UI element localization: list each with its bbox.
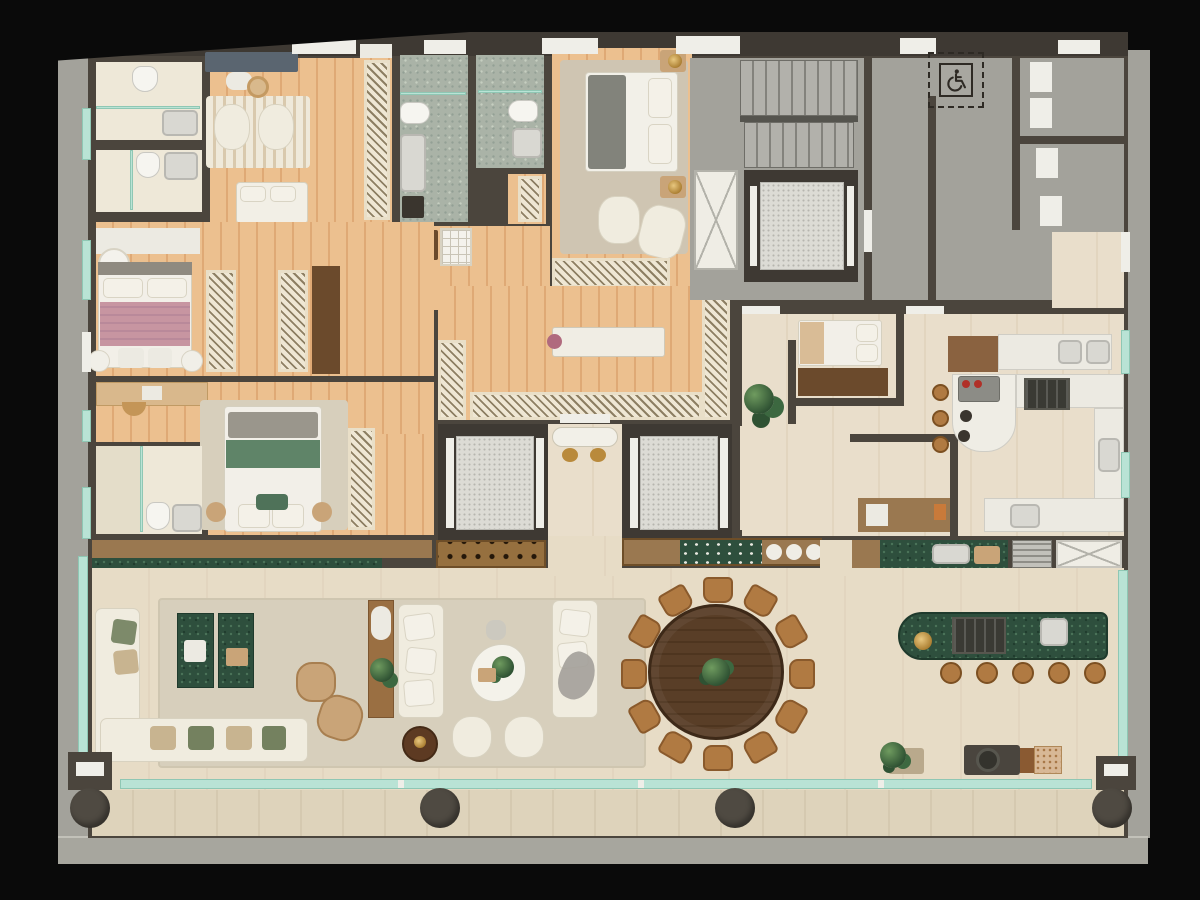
slipper-armchair bbox=[504, 716, 544, 758]
table-lamp bbox=[668, 180, 682, 194]
niche bbox=[1036, 148, 1058, 178]
glass-railing-front bbox=[120, 779, 1092, 789]
grid-cabinet bbox=[440, 228, 472, 266]
bowl bbox=[766, 544, 782, 560]
green-pillow bbox=[256, 494, 288, 510]
bbq-wood-shelf bbox=[1020, 748, 1034, 773]
gas-cooktop bbox=[1024, 378, 1070, 410]
bed-pillows bbox=[270, 186, 296, 202]
metal-shelf bbox=[1012, 540, 1052, 568]
wardrobe-closet bbox=[518, 176, 542, 222]
table-books bbox=[226, 648, 248, 666]
sofa-pillows bbox=[402, 612, 435, 642]
bed-pillows bbox=[103, 278, 143, 298]
counter-stool bbox=[932, 410, 949, 427]
toilet bbox=[136, 152, 160, 178]
wheelchair-glyph bbox=[943, 67, 969, 93]
kitchen-sink bbox=[1098, 438, 1120, 472]
x-front-cabinet bbox=[1056, 540, 1122, 568]
service-elevator-cab bbox=[760, 182, 844, 270]
elevator-door bbox=[750, 186, 757, 266]
wall bbox=[788, 340, 796, 424]
round-pouf bbox=[206, 502, 226, 522]
dining-chair bbox=[703, 577, 733, 603]
bed-pillows bbox=[856, 324, 878, 342]
console-tray bbox=[371, 606, 391, 640]
sofa-pillow-tan bbox=[226, 726, 252, 750]
elevator-1-cab bbox=[456, 436, 534, 530]
stair-flight-upper bbox=[740, 60, 858, 116]
niche bbox=[1040, 196, 1062, 226]
foot-bench bbox=[118, 348, 144, 368]
balcony-planter-edge bbox=[58, 836, 1148, 864]
kitchen-sink bbox=[1010, 504, 1040, 528]
table-books bbox=[478, 668, 496, 682]
shelf bbox=[360, 44, 392, 58]
foyer-stool bbox=[562, 448, 578, 462]
stair-flight-lower bbox=[744, 122, 854, 168]
wardrobe-cabinet bbox=[312, 266, 340, 374]
console-table bbox=[552, 427, 618, 447]
bed-throw bbox=[588, 75, 626, 169]
wall bbox=[950, 442, 958, 536]
table-lamp bbox=[668, 54, 682, 68]
balcony-column bbox=[70, 788, 110, 828]
cutting-board bbox=[974, 546, 1000, 564]
sofa-pillow-tan bbox=[113, 649, 139, 675]
bbq-pegboard bbox=[1034, 746, 1062, 774]
tv-sideboard bbox=[92, 540, 432, 558]
dining-chair bbox=[789, 659, 815, 689]
door-gap bbox=[906, 306, 944, 314]
wardrobe-closet bbox=[364, 60, 390, 220]
wardrobe-closet bbox=[348, 428, 375, 530]
kitchen-counter-south bbox=[984, 498, 1124, 532]
wall bbox=[896, 314, 904, 404]
headboard bbox=[98, 262, 192, 275]
toilet bbox=[146, 502, 170, 530]
green-blanket bbox=[226, 440, 320, 468]
window bbox=[1121, 452, 1130, 498]
sofa-pillow-green bbox=[262, 726, 286, 750]
window bbox=[82, 332, 91, 372]
core-wall bbox=[1020, 136, 1124, 144]
accessible-zone-box bbox=[928, 52, 984, 108]
toilet bbox=[132, 66, 158, 92]
sofa-pillow-green bbox=[188, 726, 214, 750]
elevator-2-cab bbox=[640, 436, 718, 530]
bath-cabinet bbox=[402, 196, 424, 218]
kitchen-sink bbox=[1086, 340, 1110, 364]
core-wall bbox=[864, 58, 872, 300]
toilet bbox=[508, 100, 538, 122]
folded-duvet bbox=[228, 412, 318, 438]
kitchen-cabinet-wood bbox=[948, 336, 998, 372]
island-stool bbox=[1084, 662, 1106, 684]
corner-plant bbox=[744, 384, 774, 414]
bed-pillows bbox=[240, 186, 266, 202]
window bbox=[676, 36, 740, 54]
window bbox=[542, 38, 598, 54]
table-centerpiece bbox=[702, 658, 730, 686]
vanity-sink bbox=[162, 110, 198, 136]
vanity-sink bbox=[512, 128, 542, 158]
woven-pouf bbox=[247, 76, 269, 98]
counter-stool bbox=[932, 384, 949, 401]
niche bbox=[1030, 98, 1052, 128]
window bbox=[1058, 40, 1100, 54]
window bbox=[82, 108, 91, 160]
window bbox=[82, 410, 91, 442]
wardrobe-closet bbox=[702, 286, 730, 420]
kitchen-sink bbox=[1058, 340, 1082, 364]
island-stool bbox=[976, 662, 998, 684]
column-vent bbox=[76, 762, 104, 776]
shower-glass bbox=[96, 106, 200, 109]
foyer-terrace-passage bbox=[548, 536, 622, 576]
elevator-door bbox=[720, 438, 728, 528]
core-wall bbox=[928, 96, 936, 300]
counter-item bbox=[960, 410, 972, 422]
wardrobe-cabinet bbox=[798, 368, 888, 396]
wardrobe-runner bbox=[552, 258, 670, 288]
buffet-green-marble bbox=[680, 540, 762, 564]
window bbox=[82, 240, 91, 300]
console-plant bbox=[370, 658, 394, 682]
railing-clamp bbox=[638, 780, 644, 788]
dining-chair bbox=[621, 659, 647, 689]
exterior-wall-right bbox=[1128, 50, 1150, 838]
vanity-sink bbox=[164, 152, 198, 180]
whiskey-bar bbox=[436, 540, 546, 568]
wheelchair-accessible-icon bbox=[939, 63, 973, 97]
machine-knob bbox=[974, 380, 982, 388]
closet-island bbox=[552, 327, 665, 357]
window bbox=[1121, 330, 1130, 374]
machine-knob bbox=[962, 380, 970, 388]
wardrobe-closet bbox=[438, 340, 466, 420]
bed-pillows bbox=[147, 278, 187, 298]
bed-blanket bbox=[800, 322, 824, 364]
pink-blanket bbox=[100, 302, 190, 346]
bed-pillows bbox=[648, 78, 672, 118]
bed-pillows bbox=[856, 344, 878, 362]
window bbox=[82, 487, 91, 539]
shower-area bbox=[96, 446, 140, 534]
vanity-sink bbox=[400, 134, 426, 192]
elevator-door bbox=[446, 438, 454, 528]
sofa-pillow-tan bbox=[150, 726, 176, 750]
island-grill bbox=[952, 617, 1006, 654]
terrace-plant bbox=[880, 742, 906, 768]
island-stool bbox=[940, 662, 962, 684]
bbq-grill bbox=[976, 748, 1000, 772]
balcony-column bbox=[420, 788, 460, 828]
round-pouf bbox=[312, 502, 332, 522]
elevator-door bbox=[630, 438, 638, 528]
kids-desk bbox=[205, 52, 298, 72]
island-sink bbox=[1040, 618, 1068, 646]
desk-items bbox=[142, 386, 162, 400]
shower-glass bbox=[400, 92, 466, 95]
vanity-sink bbox=[172, 504, 202, 532]
slipper-armchair bbox=[452, 716, 492, 758]
wardrobe-closet bbox=[206, 270, 236, 372]
laundry-sink bbox=[866, 504, 888, 526]
window bbox=[1121, 232, 1130, 272]
niche bbox=[1030, 62, 1052, 92]
terrace-sink bbox=[932, 544, 970, 564]
dining-chair bbox=[703, 745, 733, 771]
shower-glass bbox=[478, 90, 542, 93]
column-vent bbox=[1104, 764, 1128, 776]
sofa-pillows bbox=[403, 679, 435, 708]
door-gap bbox=[560, 414, 610, 423]
wall bbox=[796, 398, 904, 406]
laundry-item bbox=[934, 504, 946, 520]
wardrobe-closet bbox=[278, 270, 308, 372]
kitchen-terrace-passage bbox=[820, 540, 852, 576]
floorplan-canvas bbox=[0, 0, 1200, 900]
round-pouf bbox=[181, 350, 203, 372]
armchair bbox=[598, 196, 640, 244]
vanity-stool bbox=[547, 334, 562, 349]
tray-cup bbox=[414, 736, 426, 748]
bean-bag bbox=[258, 104, 294, 150]
counter-item bbox=[958, 430, 970, 442]
balcony-walkway bbox=[92, 790, 1124, 836]
door-gap bbox=[742, 306, 780, 314]
bed-pillows bbox=[648, 124, 672, 164]
toilet bbox=[400, 102, 430, 124]
sofa-pillow-green bbox=[110, 618, 137, 645]
foot-bench bbox=[148, 348, 172, 368]
door-gap bbox=[864, 210, 872, 252]
balcony-column bbox=[715, 788, 755, 828]
round-pouf bbox=[88, 350, 110, 372]
terrace-cabinet bbox=[852, 540, 880, 568]
railing-clamp bbox=[398, 780, 404, 788]
railing-clamp bbox=[878, 780, 884, 788]
bean-bag bbox=[214, 104, 250, 150]
sofa-pillows bbox=[559, 608, 592, 637]
island-stool bbox=[1012, 662, 1034, 684]
elevator-door bbox=[536, 438, 544, 528]
shower-glass bbox=[140, 446, 143, 532]
service-shaft-x bbox=[694, 170, 738, 270]
elevator-door bbox=[847, 186, 854, 266]
foyer-stool bbox=[590, 448, 606, 462]
gold-tray bbox=[914, 632, 932, 650]
floating-candle-tray bbox=[486, 620, 506, 640]
core-wall bbox=[1012, 58, 1020, 230]
island-stool bbox=[1048, 662, 1070, 684]
table-tray bbox=[184, 640, 206, 662]
window bbox=[424, 40, 466, 54]
service-lobby bbox=[1052, 232, 1124, 308]
shower-glass bbox=[130, 150, 133, 210]
counter-stool bbox=[932, 436, 949, 453]
balcony-column bbox=[1092, 788, 1132, 828]
bowl bbox=[786, 544, 802, 560]
sofa-pillows bbox=[405, 647, 438, 676]
